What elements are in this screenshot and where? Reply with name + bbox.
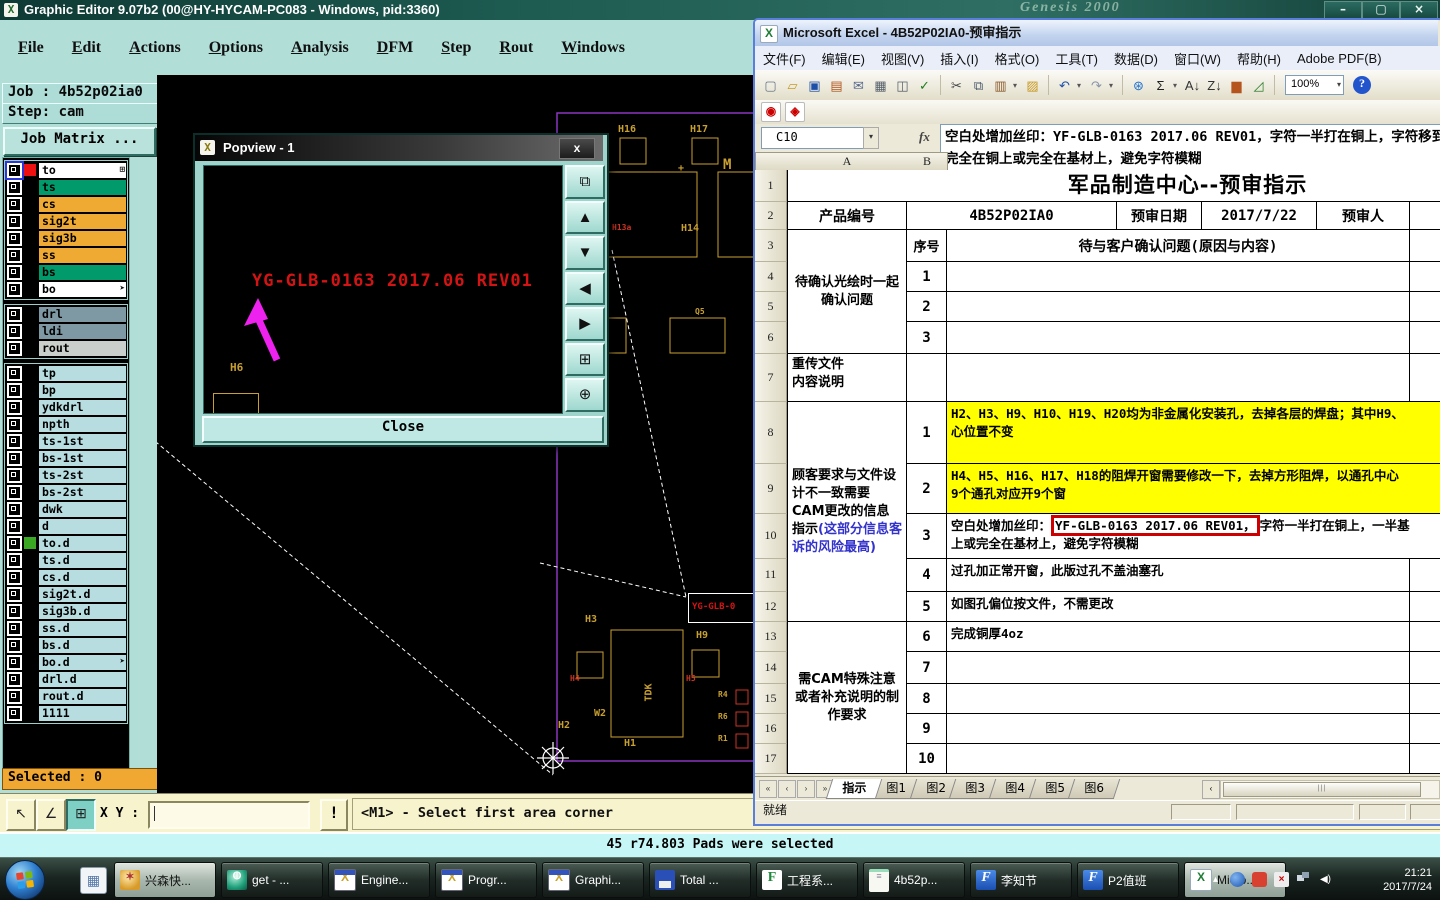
layer-row-sig2t.d[interactable]: sig2t.d: [7, 586, 127, 602]
taskbar-button-label: 4b52p...: [894, 873, 937, 887]
layer-arrow-icon: ➤: [120, 655, 125, 670]
seq-cell-5[interactable]: 5: [907, 592, 947, 622]
layer-name: sig2t.d: [39, 587, 126, 602]
layer-checkbox[interactable]: [7, 451, 22, 466]
excel-menu-Adobe PDF(B)[interactable]: Adobe PDF(B): [1297, 51, 1382, 66]
new-document-icon[interactable]: ▢: [761, 76, 780, 95]
layer-checkbox[interactable]: [7, 485, 22, 500]
taskbar-button-label: P2值班: [1108, 872, 1147, 889]
spreadsheet-grid[interactable]: 1234567891011121314151617 军品制造中心--预审指示 产…: [755, 170, 1440, 774]
layer-checkbox[interactable]: [7, 468, 22, 483]
layer-checkbox[interactable]: [7, 434, 22, 449]
cut-icon[interactable]: ✂: [947, 76, 966, 95]
row-number-6[interactable]: 6: [755, 322, 787, 354]
scroll-left-icon[interactable]: ‹: [1202, 780, 1220, 799]
layer-row-d[interactable]: d: [7, 518, 127, 534]
redo-icon-dropdown[interactable]: ▾: [1109, 81, 1116, 90]
layer-name: sig3b.d: [39, 604, 126, 619]
reviewer-label-cell[interactable]: 预审人: [1317, 202, 1410, 230]
row-number-17[interactable]: 17: [755, 744, 787, 774]
permission-icon[interactable]: ▤: [827, 76, 846, 95]
layer-row-ts[interactable]: ts: [7, 179, 127, 195]
layer-row-rout.d[interactable]: rout.d: [7, 688, 127, 704]
ready-status: 就绪: [763, 803, 787, 817]
layer-checkbox[interactable]: [7, 706, 22, 721]
layer-checkbox[interactable]: [7, 417, 22, 432]
layer-arrow-icon: ➤: [120, 282, 125, 297]
pad-outline: [213, 393, 259, 414]
pad-label-h6: H6: [230, 361, 243, 374]
help-icon[interactable]: ?: [1353, 76, 1371, 94]
section1-label-cell[interactable]: 待确认光绘时一起确认问题: [787, 230, 907, 354]
layer-name: ydkdrl: [39, 400, 126, 415]
print-preview-icon[interactable]: ◫: [893, 76, 912, 95]
open-folder-icon[interactable]: ▱: [783, 76, 802, 95]
content-cell[interactable]: H4、H5、H16、H17、H18的阻焊开窗需要修改一下，去掉方形阻焊，以通孔中…: [947, 464, 1440, 514]
taskbar-button-Progr...[interactable]: XProgr...: [435, 862, 537, 898]
content-cell[interactable]: 过孔加正常开窗，此版过孔不盖油塞孔: [947, 559, 1410, 592]
print-icon[interactable]: ▦: [871, 76, 890, 95]
section2-label-cell[interactable]: 顾客要求与文件设计不一致需要CAM更改的信息指示(这部分信息客诉的风险最高): [787, 402, 907, 622]
layer-row-bs[interactable]: bs: [7, 264, 127, 280]
layer-name: ts.d: [39, 553, 126, 568]
row-number-2[interactable]: 2: [755, 202, 787, 230]
wallpaper-genesis-text: Genesis 2000: [1020, 0, 1121, 16]
column-header-b[interactable]: B: [907, 152, 948, 172]
start-button[interactable]: [5, 860, 45, 900]
copy-window-icon[interactable]: ⧉: [565, 165, 605, 199]
row-number-14[interactable]: 14: [755, 652, 787, 684]
sheet-tab-图6[interactable]: 图6: [1068, 779, 1120, 799]
review-date-value-cell[interactable]: 2017/7/22: [1202, 202, 1317, 230]
row-number-9[interactable]: 9: [755, 464, 787, 514]
content-cell[interactable]: [947, 262, 1410, 292]
row-number-3[interactable]: 3: [755, 230, 787, 262]
taskbar-button-李知节[interactable]: F李知节: [970, 862, 1072, 898]
seq-cell-9[interactable]: 9: [907, 714, 947, 744]
ge-menu-windows[interactable]: Windows: [561, 39, 625, 57]
seq-cell-7[interactable]: 7: [907, 652, 947, 684]
seq-cell-1[interactable]: 1: [907, 402, 947, 464]
namebox-dropdown-icon[interactable]: ▾: [863, 127, 879, 149]
grid-filler: [1410, 592, 1440, 622]
hyperlink-icon[interactable]: ⊛: [1129, 76, 1148, 95]
taskbar-clock[interactable]: 21:21 2017/7/24: [1383, 866, 1432, 894]
column-header-a[interactable]: A: [787, 152, 908, 172]
notepad-icon: ≡: [869, 869, 889, 892]
retransmit-label-cell[interactable]: 重传文件内容说明: [787, 354, 907, 402]
zoom-fit-icon[interactable]: ⊞: [565, 343, 605, 377]
pcb-label-h16: H16: [618, 124, 636, 135]
layer-checkbox[interactable]: [7, 536, 22, 551]
layer-swatch-empty: [24, 469, 36, 481]
layer-checkbox[interactable]: [7, 231, 22, 246]
excel-pdf-toolbar: ◉◈: [755, 100, 1440, 125]
layer-row-ts.d[interactable]: ts.d: [7, 552, 127, 568]
pdf-email-icon[interactable]: ◈: [785, 102, 805, 122]
xy-label: X Y :: [100, 806, 139, 821]
ge-menu-rout[interactable]: Rout: [499, 39, 533, 57]
seq-cell-4[interactable]: 4: [907, 559, 947, 592]
sheet-tab-label: 图6: [1085, 779, 1105, 797]
grid-window-icon[interactable]: ⊞: [66, 799, 96, 831]
pdf-convert-icon[interactable]: ◉: [761, 102, 781, 122]
layer-row-cs.d[interactable]: cs.d: [7, 569, 127, 585]
xy-coordinate-input[interactable]: [148, 801, 310, 829]
excel-menu-编辑(E)[interactable]: 编辑(E): [822, 49, 865, 68]
pan-left-icon[interactable]: ◀: [565, 272, 605, 306]
content-cell[interactable]: [947, 652, 1410, 684]
excel-menu-数据(D)[interactable]: 数据(D): [1114, 49, 1158, 68]
redo-icon[interactable]: ↷: [1087, 76, 1106, 95]
status-panel: [1236, 804, 1354, 820]
popview-close-button[interactable]: Close: [202, 416, 604, 443]
pcb-label-h2: H2: [558, 720, 570, 731]
layer-list-panel: to⊞tscssig2tsig3bssbsbo➤ drlldirout tpbp…: [2, 157, 130, 769]
excel-window: X Microsoft Excel - 4B52P02IA0-预审指示 文件(F…: [753, 18, 1440, 826]
row-number-13[interactable]: 13: [755, 622, 787, 652]
layer-name: sig3b: [39, 231, 126, 246]
scrollbar-thumb[interactable]: |||: [1223, 782, 1421, 797]
selected-count-box: Selected : 0: [2, 768, 159, 790]
pcb-label-tdk: TDK: [644, 683, 655, 701]
layer-checkbox[interactable]: [7, 324, 22, 339]
layer-swatch-empty: [24, 342, 36, 354]
taskbar-button-Engine...[interactable]: XEngine...: [328, 862, 430, 898]
layer-row-tp[interactable]: tp: [7, 365, 127, 381]
pan-right-icon[interactable]: ▶: [565, 307, 605, 341]
ge-menu-edit[interactable]: Edit: [72, 39, 101, 57]
layer-row-ss.d[interactable]: ss.d: [7, 620, 127, 636]
layer-checkbox[interactable]: [7, 672, 22, 687]
layer-grid-icon: ⊞: [120, 163, 125, 178]
layer-checkbox[interactable]: [7, 638, 22, 653]
volume-tray-icon[interactable]: ◀): [1318, 872, 1333, 887]
row-number-10[interactable]: 10: [755, 514, 787, 559]
taskbar-button-工程系...[interactable]: F工程系...: [756, 862, 858, 898]
layer-row-drl[interactable]: drl: [7, 306, 127, 322]
sheet-title-cell[interactable]: 军品制造中心--预审指示: [787, 170, 1440, 202]
popview-titlebar[interactable]: X Popview - 1 x: [195, 135, 603, 161]
scrollbar-track[interactable]: |||: [1220, 780, 1440, 799]
seq-cell-3[interactable]: 3: [907, 322, 947, 354]
layer-swatch-empty: [24, 588, 36, 600]
layer-name: cs.d: [39, 570, 126, 585]
layer-checkbox[interactable]: [7, 604, 22, 619]
layer-swatch-empty: [24, 690, 36, 702]
seq-cell-1[interactable]: 1: [907, 262, 947, 292]
format-painter-icon[interactable]: ▨: [1023, 76, 1042, 95]
graphic-editor-titlebar[interactable]: X Graphic Editor 9.07b2 (00@HY-HYCAM-PC0…: [0, 0, 1440, 20]
taskbar-button-Total ...[interactable]: Total ...: [649, 862, 751, 898]
content-cell[interactable]: [947, 684, 1410, 714]
layer-name: bo.d➤: [39, 655, 126, 670]
sort-descending-icon[interactable]: Z↓: [1205, 76, 1224, 95]
layer-row-drl.d[interactable]: drl.d: [7, 671, 127, 687]
horizontal-scrollbar[interactable]: ‹|||: [1202, 780, 1440, 799]
layer-checkbox[interactable]: [7, 307, 22, 322]
layer-name: bp: [39, 383, 126, 398]
sheet-tab-指示[interactable]: 指示: [826, 779, 883, 799]
row-number-1[interactable]: 1: [755, 170, 787, 202]
excel-app-icon: X: [760, 25, 778, 43]
sort-ascending-icon[interactable]: A↓: [1183, 76, 1202, 95]
content-cell[interactable]: [947, 322, 1410, 354]
layer-checkbox[interactable]: [7, 621, 22, 636]
layer-row-ts-1st[interactable]: ts-1st: [7, 433, 127, 449]
layer-checkbox[interactable]: [7, 197, 22, 212]
layer-checkbox[interactable]: [7, 265, 22, 280]
excel-menu-格式(O)[interactable]: 格式(O): [995, 49, 1040, 68]
formula-bar[interactable]: 空白处增加丝印：YF-GLB-0163 2017.06 REV01，字符一半打在…: [940, 124, 1440, 174]
seq-cell[interactable]: [907, 354, 947, 402]
product-number-value-cell[interactable]: 4B52P02IA0: [907, 202, 1117, 230]
save-icon[interactable]: ▣: [805, 76, 824, 95]
layer-checkbox[interactable]: [7, 163, 22, 178]
taskbar-button-label: get - ...: [252, 873, 289, 887]
layer-row-sig2t[interactable]: sig2t: [7, 213, 127, 229]
status-panel: [1410, 804, 1440, 820]
layer-row-dwk[interactable]: dwk: [7, 501, 127, 517]
layer-row-bo.d[interactable]: bo.d➤: [7, 654, 127, 670]
seq-cell-10[interactable]: 10: [907, 744, 947, 774]
cell-reference-box[interactable]: C10: [761, 127, 877, 149]
excel-menu-窗口(W)[interactable]: 窗口(W): [1174, 49, 1221, 68]
content-cell[interactable]: H2、H3、H9、H10、H19、H20均为非金属化安装孔，去掉各层的焊盘；其中…: [947, 402, 1440, 464]
sheet-tab-label: 图3: [966, 779, 986, 797]
layer-checkbox[interactable]: [7, 180, 22, 195]
alert-button[interactable]: !: [320, 799, 348, 831]
pcb-label-+: +: [678, 163, 684, 174]
ge-menu-dfm[interactable]: DFM: [377, 39, 413, 57]
spelling-icon[interactable]: ✓: [915, 76, 934, 95]
ge-menu-analysis[interactable]: Analysis: [291, 39, 349, 57]
content-cell-silkscreen[interactable]: 空白处增加丝印：YF-GLB-0163 2017.06 REV01，字符一半打在…: [947, 514, 1440, 559]
layer-checkbox[interactable]: [7, 689, 22, 704]
content-cell[interactable]: [947, 744, 1410, 774]
layer-name: ss: [39, 248, 126, 263]
popview-dialog: X Popview - 1 x YG-GLB-0163 2017.06 REV0…: [193, 133, 609, 447]
layer-row-bs.d[interactable]: bs.d: [7, 637, 127, 653]
seq-cell-3[interactable]: 3: [907, 514, 947, 559]
layer-row-ldi[interactable]: ldi: [7, 323, 127, 339]
content-cell[interactable]: 如图孔偏位按文件，不需更改: [947, 592, 1410, 622]
zoom-level-box[interactable]: 100%: [1285, 75, 1344, 95]
layer-checkbox[interactable]: [7, 214, 22, 229]
ge-menu-options[interactable]: Options: [209, 39, 263, 57]
layer-row-npth[interactable]: npth: [7, 416, 127, 432]
shell-icon: ✶: [120, 870, 140, 890]
layer-row-bo[interactable]: bo➤: [7, 281, 127, 297]
pan-down-icon[interactable]: ▼: [565, 236, 605, 270]
pcb-label-r6: R6: [718, 712, 728, 721]
layer-name: to.d: [39, 536, 126, 551]
fblue-icon: F: [976, 870, 996, 890]
row-number-8[interactable]: 8: [755, 402, 787, 464]
excel-menu-插入(I)[interactable]: 插入(I): [940, 49, 978, 68]
layer-checkbox[interactable]: [7, 282, 22, 297]
row-number-4[interactable]: 4: [755, 262, 787, 292]
toolbar-separator: [1122, 75, 1123, 95]
layer-checkbox[interactable]: [7, 570, 22, 585]
clock-date: 2017/7/24: [1383, 880, 1432, 894]
xwin-icon: X: [334, 869, 356, 891]
popview-close-icon[interactable]: x: [559, 138, 595, 159]
taskbar-button-P2值班[interactable]: FP2值班: [1077, 862, 1179, 898]
excel-menu-工具(T)[interactable]: 工具(T): [1055, 49, 1098, 68]
messenger-tray-icon[interactable]: [1230, 872, 1245, 887]
xwin-icon: X: [548, 869, 570, 891]
layer-swatch-empty: [24, 232, 36, 244]
layer-checkbox[interactable]: [7, 383, 22, 398]
taskbar-button-Graphi...[interactable]: XGraphi...: [542, 862, 644, 898]
undo-icon-dropdown[interactable]: ▾: [1077, 81, 1084, 90]
layer-row-bs-1st[interactable]: bs-1st: [7, 450, 127, 466]
confirm-header-cell[interactable]: 待与客户确认问题(原因与内容): [947, 230, 1410, 262]
row-number-gutter: 1234567891011121314151617: [755, 170, 787, 774]
zoom-center-icon[interactable]: ⊕: [565, 378, 605, 412]
sheet-tab-bar: «‹›»指示图1图2图3图4图5图6‹|||: [755, 776, 1440, 801]
seq-cell-2[interactable]: 2: [907, 464, 947, 514]
select-all-corner[interactable]: [755, 152, 789, 172]
seq-header-cell[interactable]: 序号: [907, 230, 947, 262]
layer-name: rout: [39, 341, 126, 356]
layer-checkbox[interactable]: [7, 655, 22, 670]
ge-menu-step[interactable]: Step: [441, 39, 471, 57]
row-number-7[interactable]: 7: [755, 354, 787, 402]
silkscreen-text: YG-GLB-0163 2017.06 REV01: [252, 271, 533, 291]
next-sheet-icon[interactable]: ›: [797, 780, 815, 798]
layer-row-rout[interactable]: rout: [7, 340, 127, 356]
layer-color-swatch[interactable]: [24, 537, 36, 549]
select-arrow-icon[interactable]: ↖: [6, 799, 36, 831]
excel-menu-文件(F)[interactable]: 文件(F): [763, 49, 806, 68]
row-number-16[interactable]: 16: [755, 714, 787, 744]
layer-row-to.d[interactable]: to.d: [7, 535, 127, 551]
layer-name: bs: [39, 265, 126, 280]
text-caret: [154, 806, 155, 821]
calculator-quicklaunch-icon[interactable]: ▦: [80, 867, 107, 894]
layer-swatch-empty: [24, 325, 36, 337]
layer-row-bs-2st[interactable]: bs-2st: [7, 484, 127, 500]
undo-icon[interactable]: ↶: [1055, 76, 1074, 95]
taskbar-button-兴森快...[interactable]: ✶兴森快...: [114, 862, 216, 898]
review-date-label-cell[interactable]: 预审日期: [1117, 202, 1202, 230]
first-sheet-icon[interactable]: «: [759, 780, 777, 798]
step-name-box: Step: cam: [2, 103, 159, 124]
layer-name: ss.d: [39, 621, 126, 636]
layer-checkbox[interactable]: [7, 519, 22, 534]
row-number-11[interactable]: 11: [755, 559, 787, 592]
ge-menu-actions[interactable]: Actions: [129, 39, 181, 57]
layer-row-sig3b.d[interactable]: sig3b.d: [7, 603, 127, 619]
layer-checkbox[interactable]: [7, 366, 22, 381]
pan-up-icon[interactable]: ▲: [565, 201, 605, 235]
content-cell[interactable]: [947, 714, 1410, 744]
layer-swatch-empty: [24, 605, 36, 617]
layer-group-misc: tpbpydkdrlnpthts-1stbs-1stts-2stbs-2stdw…: [4, 363, 128, 724]
excel-menu-视图(V)[interactable]: 视图(V): [881, 49, 924, 68]
security-tray-icon[interactable]: [1252, 872, 1267, 887]
product-number-label-cell[interactable]: 产品编号: [787, 202, 907, 230]
layer-row-1111[interactable]: 1111: [7, 705, 127, 721]
row-number-5[interactable]: 5: [755, 292, 787, 322]
row-number-12[interactable]: 12: [755, 592, 787, 622]
pcb-label-h1: H1: [624, 738, 636, 749]
layer-swatch-empty: [24, 283, 36, 295]
taskbar-button-label: Total ...: [680, 873, 719, 887]
layer-row-ydkdrl[interactable]: ydkdrl: [7, 399, 127, 415]
prev-sheet-icon[interactable]: ‹: [778, 780, 796, 798]
content-cell[interactable]: [947, 354, 1410, 402]
ge-menu-file[interactable]: File: [18, 39, 44, 57]
layer-row-ts-2st[interactable]: ts-2st: [7, 467, 127, 483]
clock-time: 21:21: [1383, 866, 1432, 880]
section3-label-cell[interactable]: 需CAM特殊注意或者补充说明的制作要求: [787, 622, 907, 774]
autosum-icon-dropdown[interactable]: ▾: [1173, 81, 1180, 90]
content-cell[interactable]: [947, 292, 1410, 322]
paste-icon[interactable]: ▥: [991, 76, 1010, 95]
chart-wizard-icon[interactable]: ▆: [1227, 76, 1246, 95]
excel-standard-toolbar: ▢▱▣▤✉▦◫✓✂⧉▥▾▨↶▾↷▾⊛Σ▾A↓Z↓▆◿100%?: [755, 70, 1440, 101]
content-text: 空白处增加丝印：: [951, 518, 1051, 533]
layer-color-swatch[interactable]: [24, 164, 36, 176]
job-matrix-button[interactable]: Job Matrix ...: [3, 127, 156, 156]
layer-swatch-empty: [24, 656, 36, 668]
drawing-icon[interactable]: ◿: [1249, 76, 1268, 95]
excel-titlebar[interactable]: X Microsoft Excel - 4B52P02IA0-预审指示: [755, 20, 1438, 46]
seq-cell-8[interactable]: 8: [907, 684, 947, 714]
layer-row-sig3b[interactable]: sig3b: [7, 230, 127, 246]
taskbar-button-label: 李知节: [1001, 872, 1037, 889]
copy-icon[interactable]: ⧉: [969, 76, 988, 95]
layer-row-to[interactable]: to⊞: [7, 162, 127, 178]
magenta-arrow-icon: [244, 298, 304, 378]
layer-checkbox[interactable]: [7, 248, 22, 263]
hidden-icons-arrow[interactable]: ▴: [1208, 872, 1223, 887]
layer-name: cs: [39, 197, 126, 212]
popview-canvas[interactable]: YG-GLB-0163 2017.06 REV01 H6: [203, 165, 563, 414]
snap-angle-icon[interactable]: ∠: [36, 799, 66, 831]
seq-cell-2[interactable]: 2: [907, 292, 947, 322]
layer-row-cs[interactable]: cs: [7, 196, 127, 212]
layer-checkbox[interactable]: [7, 341, 22, 356]
excel-menu-帮助(H)[interactable]: 帮助(H): [1237, 49, 1281, 68]
layer-checkbox[interactable]: [7, 400, 22, 415]
layer-sidebar: Job : 4b52p02ia0 Step: cam Job Matrix ..…: [0, 75, 157, 793]
layer-name: d: [39, 519, 126, 534]
row-number-15[interactable]: 15: [755, 684, 787, 714]
email-icon[interactable]: ✉: [849, 76, 868, 95]
layer-checkbox[interactable]: [7, 587, 22, 602]
reviewer-value-cell[interactable]: [1410, 202, 1440, 230]
layer-checkbox[interactable]: [7, 502, 22, 517]
taskbar-button-get - ...[interactable]: ◍get - ...: [221, 862, 323, 898]
paste-icon-dropdown[interactable]: ▾: [1013, 81, 1020, 90]
device-error-tray-icon[interactable]: ×: [1274, 872, 1289, 887]
layer-checkbox[interactable]: [7, 553, 22, 568]
content-cell[interactable]: 完成铜厚4oz: [947, 622, 1410, 652]
network-tray-icon[interactable]: [1296, 872, 1311, 887]
seq-cell-6[interactable]: 6: [907, 622, 947, 652]
excel-title: Microsoft Excel - 4B52P02IA0-预审指示: [783, 20, 1021, 46]
autosum-icon[interactable]: Σ: [1151, 76, 1170, 95]
taskbar-button-4b52p...[interactable]: ≡4b52p...: [863, 862, 965, 898]
sheet-tab-label: 图4: [1005, 779, 1025, 797]
layer-row-bp[interactable]: bp: [7, 382, 127, 398]
layer-swatch-empty: [24, 486, 36, 498]
layer-row-ss[interactable]: ss: [7, 247, 127, 263]
